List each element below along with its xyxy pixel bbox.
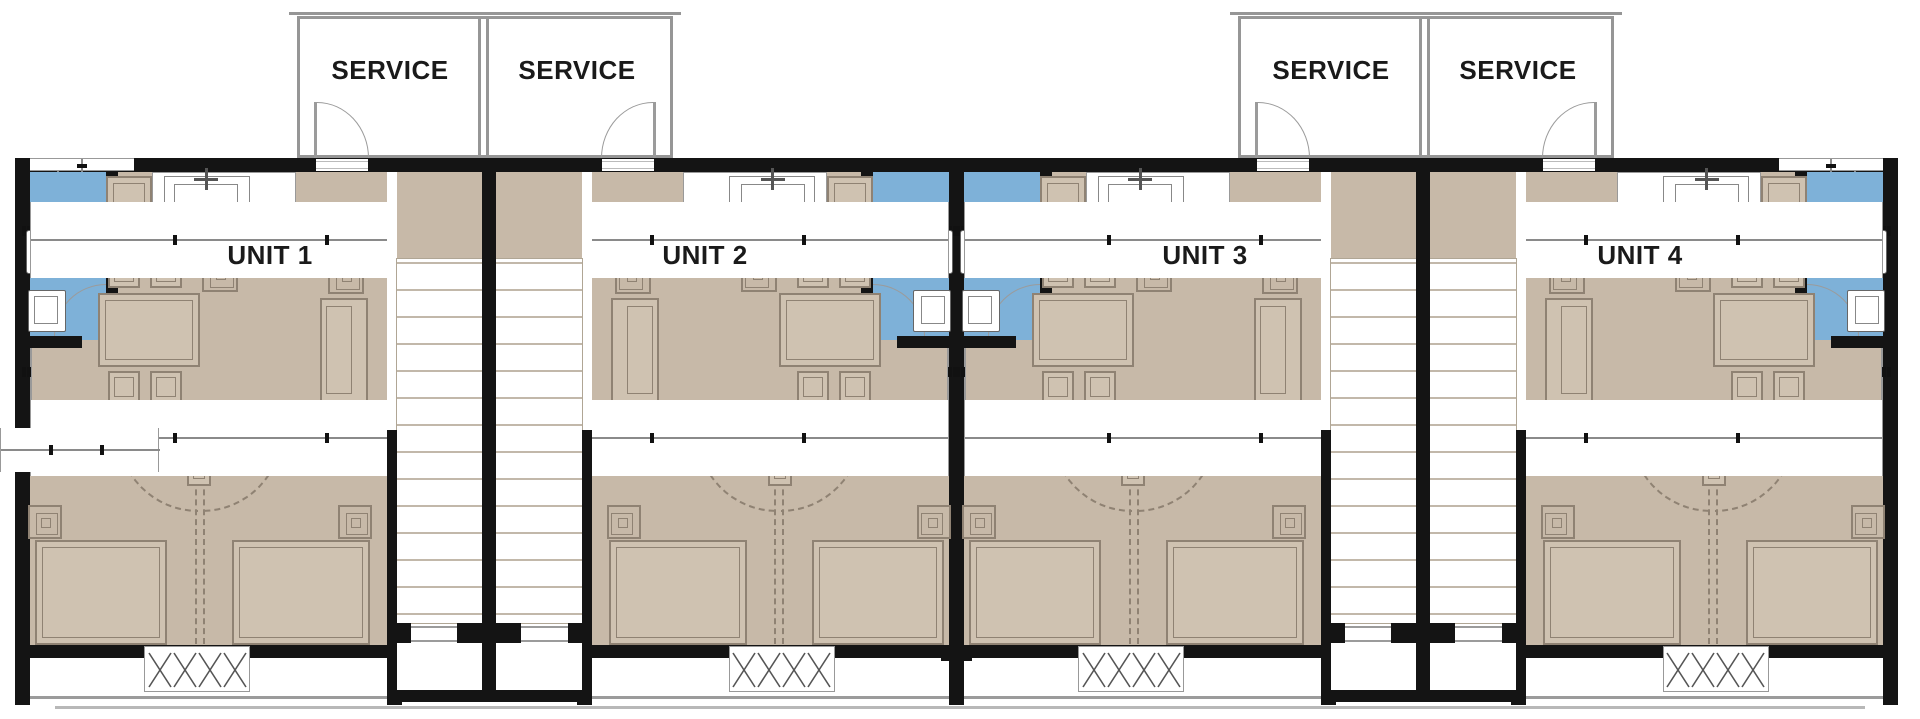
dining-table-inner bbox=[1039, 300, 1127, 360]
stair-tread bbox=[1331, 316, 1416, 318]
dining-table-inner bbox=[105, 300, 193, 360]
window bbox=[1779, 158, 1883, 171]
door-opening-line bbox=[316, 161, 368, 162]
dining-chair bbox=[1042, 371, 1074, 403]
stair-tread bbox=[397, 289, 482, 291]
entry-wall bbox=[496, 623, 521, 643]
stair-side-wall bbox=[582, 430, 592, 702]
window-mullion bbox=[956, 367, 960, 377]
stair-tread bbox=[1331, 478, 1416, 480]
service-roof-line bbox=[289, 12, 681, 15]
stair-tread bbox=[397, 262, 482, 264]
nightstand-core bbox=[618, 518, 628, 528]
nightstand bbox=[1541, 505, 1575, 539]
stair-tread bbox=[397, 532, 482, 534]
stair-side-wall bbox=[387, 430, 397, 702]
balcony-rail bbox=[580, 696, 961, 699]
bed bbox=[969, 540, 1101, 645]
dining-table bbox=[779, 293, 881, 367]
stair-tread bbox=[1430, 505, 1516, 507]
stair-tread bbox=[1331, 559, 1416, 561]
service-label: SERVICE bbox=[1408, 56, 1628, 84]
stair-tread bbox=[1430, 613, 1516, 615]
balcony-rail bbox=[952, 696, 1333, 699]
nightstand-core bbox=[1285, 518, 1295, 528]
stair-tread bbox=[397, 343, 482, 345]
stair-tread bbox=[1331, 262, 1416, 264]
stair-tread bbox=[496, 613, 582, 615]
wall-post bbox=[949, 645, 964, 705]
dining-table-inner bbox=[1720, 300, 1808, 360]
lobby-bottom-wall bbox=[387, 690, 592, 702]
dining-table bbox=[1032, 293, 1134, 367]
balcony-rail bbox=[1514, 696, 1895, 699]
door-opening bbox=[602, 159, 654, 171]
stair-flight bbox=[1330, 258, 1417, 624]
stair-tread bbox=[397, 451, 482, 453]
stair-tread bbox=[496, 451, 582, 453]
faucet-icon bbox=[1695, 178, 1719, 181]
door-opening-line bbox=[1543, 161, 1595, 162]
entry-wall bbox=[568, 623, 592, 643]
faucet-icon bbox=[194, 178, 218, 181]
stair-tread bbox=[397, 613, 482, 615]
bathroom-wall bbox=[1831, 336, 1883, 348]
nightstand bbox=[607, 505, 641, 539]
service-roof-line bbox=[1230, 12, 1622, 15]
stairwell bbox=[387, 172, 592, 702]
unit-label: UNIT 1 bbox=[160, 241, 380, 269]
stair-tread bbox=[1331, 532, 1416, 534]
folding-window-icon bbox=[729, 646, 835, 692]
stair-tread bbox=[496, 478, 582, 480]
entry-door-line bbox=[1345, 626, 1391, 628]
stair-tread bbox=[397, 424, 482, 426]
nightstand bbox=[1851, 505, 1885, 539]
stair-tread bbox=[1331, 370, 1416, 372]
stair-flight bbox=[495, 258, 583, 624]
bed bbox=[1746, 540, 1878, 645]
stair-landing bbox=[397, 172, 482, 258]
nightstand bbox=[917, 505, 951, 539]
sofa bbox=[320, 298, 368, 402]
dining-chair-inner bbox=[114, 377, 134, 397]
window-mullion bbox=[1584, 433, 1588, 443]
dining-chair-inner bbox=[845, 377, 865, 397]
dining-chair-inner bbox=[1737, 377, 1757, 397]
window-mullion bbox=[650, 433, 654, 443]
stair-flight bbox=[1429, 258, 1517, 624]
dining-chair bbox=[108, 371, 140, 403]
dining-table bbox=[98, 293, 200, 367]
dining-chair bbox=[839, 371, 871, 403]
door-opening bbox=[1543, 159, 1595, 171]
stair-tread bbox=[1331, 343, 1416, 345]
floor-plan: UNIT 1 UNIT 2 UNIT 3 UNIT 4 SERVICE SERV… bbox=[0, 0, 1920, 719]
sofa-inner bbox=[326, 306, 352, 394]
dining-chair-inner bbox=[1048, 377, 1068, 397]
window-mullion bbox=[325, 433, 329, 443]
dining-chair-inner bbox=[803, 377, 823, 397]
bed-inner bbox=[1173, 547, 1297, 638]
bathroom-sink-basin bbox=[1855, 296, 1879, 324]
stair-tread bbox=[496, 559, 582, 561]
bathroom-wall bbox=[30, 336, 82, 348]
service-room-divider bbox=[486, 16, 489, 158]
door-opening-line bbox=[1257, 168, 1309, 169]
nightstand bbox=[962, 505, 996, 539]
door-opening-line bbox=[1257, 161, 1309, 162]
window-mullion bbox=[22, 367, 26, 377]
folding-window-icon bbox=[1663, 646, 1769, 692]
dining-chair-inner bbox=[1779, 377, 1799, 397]
stair-landing bbox=[496, 172, 582, 258]
window bbox=[0, 428, 159, 472]
nightstand bbox=[28, 505, 62, 539]
bed bbox=[232, 540, 370, 645]
nightstand-core bbox=[351, 518, 361, 528]
stair-flight bbox=[396, 258, 483, 624]
stair-tread bbox=[496, 343, 582, 345]
sofa-inner bbox=[1561, 306, 1587, 394]
stair-tread bbox=[1331, 613, 1416, 615]
window-line bbox=[1, 449, 160, 451]
stair-tread bbox=[1331, 505, 1416, 507]
dining-chair bbox=[150, 371, 182, 403]
entry-door-line bbox=[411, 640, 457, 642]
stair-tread bbox=[1430, 559, 1516, 561]
stair-tread bbox=[397, 586, 482, 588]
entry-door-line bbox=[411, 626, 457, 628]
sofa bbox=[611, 298, 659, 402]
nightstand-core bbox=[1552, 518, 1562, 528]
bed-inner bbox=[616, 547, 740, 638]
stair-tread bbox=[1430, 316, 1516, 318]
unit-label: UNIT 2 bbox=[595, 241, 815, 269]
window-mullion bbox=[1826, 164, 1836, 168]
stair-tread bbox=[1331, 424, 1416, 426]
nightstand bbox=[338, 505, 372, 539]
nightstand bbox=[1272, 505, 1306, 539]
window-mullion bbox=[1887, 226, 1891, 236]
entry-wall bbox=[1430, 623, 1455, 643]
entry-door-line bbox=[1345, 640, 1391, 642]
dining-chair bbox=[1084, 371, 1116, 403]
stair-tread bbox=[1430, 289, 1516, 291]
stair-tread bbox=[397, 478, 482, 480]
bed bbox=[1543, 540, 1681, 645]
bed-inner bbox=[1753, 547, 1871, 638]
bathroom-sink bbox=[913, 290, 951, 332]
dining-chair bbox=[1731, 371, 1763, 403]
bathroom-sink bbox=[28, 290, 66, 332]
stair-tread bbox=[1430, 532, 1516, 534]
balcony-rail bbox=[18, 696, 399, 699]
nightstand-core bbox=[1862, 518, 1872, 528]
wall-post bbox=[15, 645, 30, 705]
bathroom-wall bbox=[964, 336, 1016, 348]
window-mullion bbox=[1259, 433, 1263, 443]
bathroom-sink bbox=[962, 290, 1000, 332]
stair-landing bbox=[1331, 172, 1416, 258]
window-mullion bbox=[802, 433, 806, 443]
window-mullion bbox=[1887, 367, 1891, 377]
folding-window-icon bbox=[144, 646, 250, 692]
bathroom-sink-basin bbox=[968, 296, 992, 324]
dining-table bbox=[1713, 293, 1815, 367]
stair-tread bbox=[1331, 451, 1416, 453]
window-mullion bbox=[49, 445, 53, 455]
sofa-inner bbox=[627, 306, 653, 394]
entry-wall bbox=[387, 623, 411, 643]
stair-tread bbox=[1331, 397, 1416, 399]
bed bbox=[812, 540, 944, 645]
service-door-leaf bbox=[653, 102, 656, 158]
door-opening-line bbox=[602, 161, 654, 162]
faucet-icon bbox=[761, 178, 785, 181]
stair-tread bbox=[1430, 370, 1516, 372]
door-opening-line bbox=[602, 168, 654, 169]
stair-tread bbox=[1331, 586, 1416, 588]
lobby-bottom-wall bbox=[1321, 690, 1526, 702]
dining-table-inner bbox=[786, 300, 874, 360]
entry-wall bbox=[1502, 623, 1526, 643]
stair-tread bbox=[496, 316, 582, 318]
stair-center-wall bbox=[482, 158, 496, 702]
unit-label: UNIT 3 bbox=[1095, 241, 1315, 269]
entry-door-line bbox=[521, 626, 568, 628]
stair-tread bbox=[496, 370, 582, 372]
entry-door-line bbox=[1455, 626, 1502, 628]
stair-tread bbox=[496, 397, 582, 399]
stair-tread bbox=[397, 505, 482, 507]
stair-tread bbox=[496, 505, 582, 507]
dining-chair-inner bbox=[1090, 377, 1110, 397]
window-mullion bbox=[1736, 433, 1740, 443]
service-door-leaf bbox=[1594, 102, 1597, 158]
stair-tread bbox=[496, 424, 582, 426]
unit-label: UNIT 4 bbox=[1530, 241, 1750, 269]
entry-wall bbox=[1321, 623, 1345, 643]
bed-inner bbox=[976, 547, 1094, 638]
stair-tread bbox=[1430, 451, 1516, 453]
service-room-divider bbox=[1427, 16, 1430, 158]
entry-door-line bbox=[1455, 640, 1502, 642]
stair-tread bbox=[397, 397, 482, 399]
nightstand-core bbox=[41, 518, 51, 528]
bed bbox=[35, 540, 167, 645]
stair-tread bbox=[397, 559, 482, 561]
bathroom-sink bbox=[1847, 290, 1885, 332]
window-mullion bbox=[1882, 367, 1886, 377]
bathroom-sink-basin bbox=[34, 296, 58, 324]
stair-landing bbox=[1430, 172, 1516, 258]
bed bbox=[609, 540, 747, 645]
stair-tread bbox=[1430, 397, 1516, 399]
door-opening bbox=[316, 159, 368, 171]
window bbox=[30, 158, 134, 171]
entry-wall bbox=[1391, 623, 1416, 643]
door-opening-line bbox=[316, 168, 368, 169]
stair-tread bbox=[496, 262, 582, 264]
stair-tread bbox=[397, 316, 482, 318]
stair-tread bbox=[496, 289, 582, 291]
dining-chair-inner bbox=[156, 377, 176, 397]
bed bbox=[1166, 540, 1304, 645]
bed-inner bbox=[1550, 547, 1674, 638]
wall-post bbox=[1883, 645, 1898, 705]
stairwell bbox=[1321, 172, 1526, 702]
window-mullion bbox=[77, 164, 87, 168]
bed-inner bbox=[42, 547, 160, 638]
door-opening-line bbox=[1543, 168, 1595, 169]
sofa bbox=[1254, 298, 1302, 402]
service-room-divider bbox=[1419, 16, 1422, 158]
bed-inner bbox=[239, 547, 363, 638]
door-opening bbox=[1257, 159, 1309, 171]
service-room-divider bbox=[478, 16, 481, 158]
nightstand-core bbox=[928, 518, 938, 528]
stair-side-wall bbox=[1321, 430, 1331, 702]
stair-tread bbox=[496, 586, 582, 588]
bed-inner bbox=[819, 547, 937, 638]
nightstand-core bbox=[975, 518, 985, 528]
folding-window-icon bbox=[1078, 646, 1184, 692]
stair-tread bbox=[496, 532, 582, 534]
bathroom-sink-basin bbox=[921, 296, 945, 324]
window-mullion bbox=[948, 367, 952, 377]
stair-tread bbox=[1331, 289, 1416, 291]
window-mullion bbox=[1107, 433, 1111, 443]
stair-tread bbox=[1430, 262, 1516, 264]
entry-door-line bbox=[521, 640, 568, 642]
entry-wall bbox=[457, 623, 482, 643]
stair-center-wall bbox=[1416, 158, 1430, 702]
sofa bbox=[1545, 298, 1593, 402]
service-label: SERVICE bbox=[467, 56, 687, 84]
stair-tread bbox=[1430, 343, 1516, 345]
stair-tread bbox=[1430, 424, 1516, 426]
stair-tread bbox=[397, 370, 482, 372]
stair-tread bbox=[1430, 586, 1516, 588]
dining-chair bbox=[1773, 371, 1805, 403]
bathroom-wall bbox=[897, 336, 949, 348]
window-mullion bbox=[961, 367, 965, 377]
stair-side-wall bbox=[1516, 430, 1526, 702]
window-mullion bbox=[173, 433, 177, 443]
dining-chair bbox=[797, 371, 829, 403]
sofa-inner bbox=[1260, 306, 1286, 394]
window-mullion bbox=[100, 445, 104, 455]
window-mullion bbox=[27, 367, 31, 377]
faucet-icon bbox=[1128, 178, 1152, 181]
stair-tread bbox=[1430, 478, 1516, 480]
